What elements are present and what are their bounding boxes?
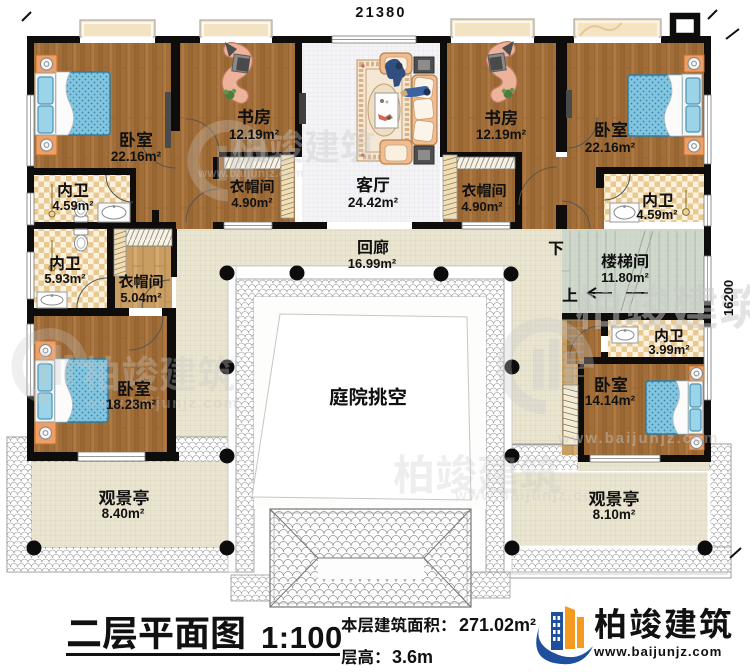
svg-text:4.59m²: 4.59m²: [52, 198, 94, 213]
svg-text:3.6m: 3.6m: [392, 647, 433, 667]
svg-text:www.baijunjz.com: www.baijunjz.com: [197, 168, 304, 180]
svg-text:4.59m²: 4.59m²: [636, 207, 678, 222]
svg-text:3.99m²: 3.99m²: [648, 342, 690, 357]
svg-text:12.19m²: 12.19m²: [229, 127, 280, 142]
svg-text:4.90m²: 4.90m²: [461, 199, 503, 214]
svg-text:14.14m²: 14.14m²: [585, 393, 636, 408]
svg-text:1:100: 1:100: [261, 620, 343, 655]
svg-text:11.80m²: 11.80m²: [601, 270, 649, 285]
svg-text:www.baijunjz.com: www.baijunjz.com: [454, 487, 608, 504]
svg-text:12.19m²: 12.19m²: [476, 127, 527, 142]
svg-text:22.16m²: 22.16m²: [585, 140, 636, 155]
svg-text:24.42m²: 24.42m²: [348, 195, 399, 210]
svg-text:8.10m²: 8.10m²: [593, 507, 636, 522]
svg-text:4.90m²: 4.90m²: [231, 195, 273, 210]
svg-text:5.04m²: 5.04m²: [120, 290, 162, 305]
svg-text:8.40m²: 8.40m²: [102, 506, 145, 521]
svg-text:21380: 21380: [355, 5, 406, 21]
svg-text:www.baijunjz.com: www.baijunjz.com: [593, 644, 722, 659]
svg-text:22.16m²: 22.16m²: [111, 149, 162, 164]
svg-text:16.99m²: 16.99m²: [348, 256, 397, 271]
svg-text:www.baijunjz.com: www.baijunjz.com: [557, 430, 719, 447]
svg-text:18.23m²: 18.23m²: [106, 397, 157, 412]
svg-text:5.93m²: 5.93m²: [44, 271, 86, 286]
svg-text:271.02m²: 271.02m²: [459, 615, 536, 635]
svg-text:16200: 16200: [721, 280, 736, 316]
